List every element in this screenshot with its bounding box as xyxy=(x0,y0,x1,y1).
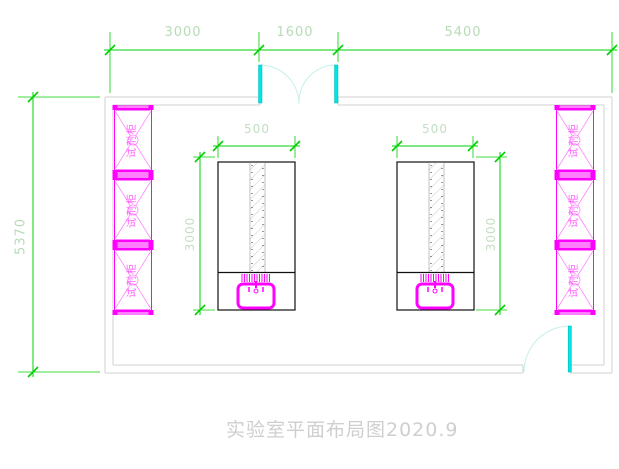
reagent-cabinet-column-left xyxy=(113,105,154,315)
dimension-lines xyxy=(18,32,617,377)
reagent-cabinet xyxy=(555,175,596,245)
room-walls xyxy=(105,97,612,373)
reagent-cabinet xyxy=(555,245,596,315)
floor-plan-canvas: 3000 1600 5400 5370 500 500 3000 3000 试剂… xyxy=(0,0,619,469)
floor-plan-drawing xyxy=(0,0,619,469)
dimension-ticks xyxy=(28,45,617,377)
door-leaf-left xyxy=(259,65,263,103)
reagent-cabinet xyxy=(113,105,154,175)
door-leaf-right xyxy=(335,65,339,103)
lab-bench-right xyxy=(397,162,474,310)
reagent-cabinet xyxy=(113,245,154,315)
door-leaf-bottom xyxy=(568,326,571,372)
reagent-cabinet-column-right xyxy=(555,105,596,315)
reagent-cabinet xyxy=(113,175,154,245)
reagent-cabinet xyxy=(555,105,596,175)
single-door-bottom xyxy=(524,326,571,372)
lab-bench-left xyxy=(218,162,295,310)
double-door-top xyxy=(259,65,339,104)
